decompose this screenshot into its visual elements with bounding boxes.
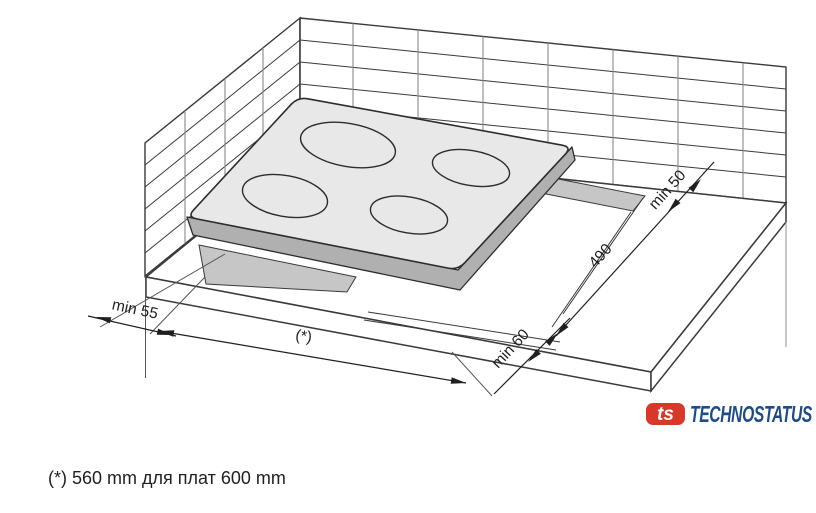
dimension-min55: min 55: [88, 296, 176, 336]
hob-installation-diagram: 490 min 50 min 60 min 55 (*) ts TECHNOST…: [0, 0, 816, 513]
logo-wordmark: TECHNOSTATUS: [690, 401, 813, 427]
dimension-label-min55: min 55: [110, 296, 159, 322]
footnote-text: (*) 560 mm для плат 600 mm: [48, 468, 286, 488]
installation-diagram-page: 490 min 50 min 60 min 55 (*) ts TECHNOST…: [0, 0, 816, 513]
logo-mark-letters: ts: [657, 404, 674, 425]
arrowhead: [96, 317, 111, 323]
arrowhead: [451, 377, 466, 383]
technostatus-logo: ts TECHNOSTATUS: [646, 401, 813, 427]
dimension-label-star: (*): [294, 327, 313, 346]
